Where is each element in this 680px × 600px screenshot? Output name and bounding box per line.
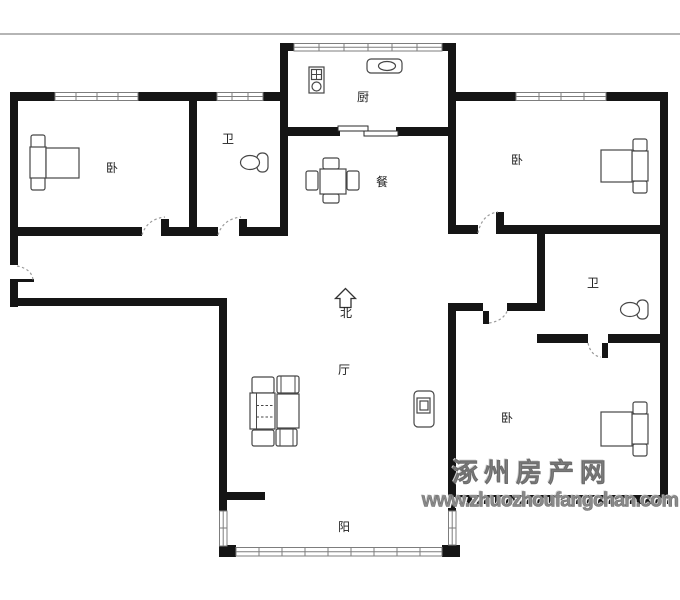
top-border-line: [0, 33, 680, 35]
tv-cabinet-icon: [414, 391, 434, 427]
room-label-living: 厅: [338, 364, 350, 376]
hall-door-leaf: [483, 311, 489, 324]
bed-icon-bedroom1: [30, 135, 79, 190]
room-label-bathroom-top: 卫: [222, 133, 234, 145]
kitchen-sliding-door: [338, 126, 398, 136]
door-arc-entry: [17, 266, 33, 280]
floorplan-canvas: 卧 卫 厨 餐 卧 卫 厅 卧 阳 北 涿州房产网 www.zhuozhoufa…: [0, 0, 680, 600]
door-arc-bedroom3: [489, 309, 508, 323]
window-bedroom2: [516, 93, 606, 101]
room-label-bedroom-bottom-right: 卧: [501, 412, 513, 424]
room-label-dining: 餐: [376, 176, 388, 188]
window-bathroom1: [217, 93, 263, 101]
bed-icon-bedroom3: [601, 402, 648, 456]
door-arc-bathroom1: [218, 217, 241, 235]
dining-table-icon: [306, 158, 359, 203]
north-label: 北: [340, 307, 352, 319]
window-balcony-front: [236, 548, 442, 557]
window-balcony-left: [220, 511, 228, 546]
bath2-door-leaf: [602, 343, 608, 358]
sofa-set-icon: [250, 376, 299, 446]
window-bedroom1: [55, 93, 138, 101]
watermark-site-url: www.zhuozhoufangchan.com: [422, 490, 678, 513]
window-balcony-right: [449, 511, 457, 545]
door-arc-bedroom2: [478, 212, 498, 233]
room-label-bedroom-top-right: 卧: [511, 154, 523, 166]
entry-door-leaf: [10, 279, 34, 282]
window-kitchen: [294, 44, 442, 52]
north-arrow-icon: [336, 289, 356, 308]
stove-icon: [309, 67, 324, 93]
room-label-bathroom-right: 卫: [587, 277, 599, 289]
toilet-icon-bathroom1: [241, 153, 269, 172]
room-label-balcony: 阳: [338, 521, 350, 533]
bed-icon-bedroom2: [601, 139, 648, 193]
sink-icon: [367, 59, 402, 73]
room-label-bedroom-top-left: 卧: [106, 162, 118, 174]
door-arc-bathroom2: [588, 343, 601, 357]
room-label-kitchen: 厨: [357, 91, 369, 103]
toilet-icon-bathroom2: [621, 300, 649, 319]
watermark-site-name: 涿州房产网: [452, 453, 612, 490]
